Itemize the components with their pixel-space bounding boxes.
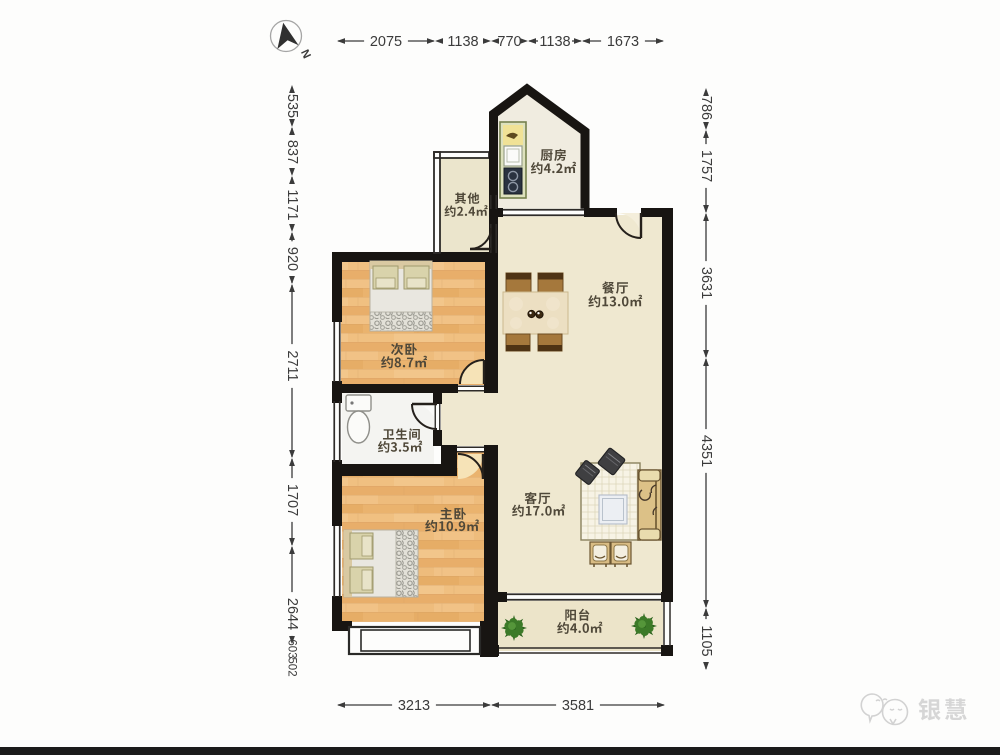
svg-text:1138: 1138: [447, 34, 478, 50]
svg-text:3631: 3631: [698, 267, 714, 299]
svg-text:1707: 1707: [284, 484, 300, 516]
svg-text:1171: 1171: [284, 189, 300, 220]
svg-text:1757: 1757: [698, 150, 714, 182]
svg-text:770: 770: [497, 34, 521, 50]
svg-text:920: 920: [284, 247, 300, 271]
svg-text:2644: 2644: [284, 598, 300, 630]
svg-text:3581: 3581: [562, 698, 594, 714]
svg-text:786: 786: [698, 96, 714, 120]
svg-text:502: 502: [286, 657, 298, 676]
svg-text:603: 603: [286, 639, 298, 658]
svg-text:1673: 1673: [607, 34, 639, 50]
svg-text:1105: 1105: [698, 625, 714, 656]
svg-text:4351: 4351: [698, 435, 714, 467]
svg-text:535: 535: [284, 94, 300, 118]
svg-text:837: 837: [284, 140, 300, 164]
svg-text:3213: 3213: [398, 698, 430, 714]
svg-text:2711: 2711: [284, 350, 300, 381]
svg-text:N: N: [298, 48, 312, 61]
svg-text:1138: 1138: [539, 34, 570, 50]
svg-text:2075: 2075: [370, 34, 402, 50]
